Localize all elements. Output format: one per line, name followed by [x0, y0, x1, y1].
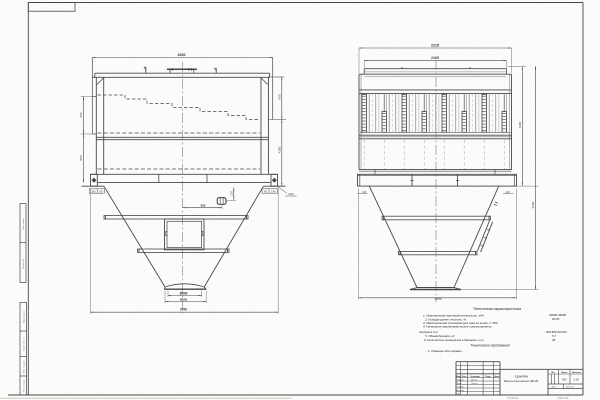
svg-text:Ø430: Ø430 — [180, 298, 188, 302]
svg-text:2215: 2215 — [431, 44, 439, 48]
svg-text:Взам. инв. №: Взам. инв. № — [23, 337, 26, 351]
svg-text:140: 140 — [506, 191, 511, 194]
svg-text:Лит.: Лит. — [551, 372, 555, 374]
svg-text:Инв. № подл.: Инв. № подл. — [23, 379, 26, 392]
svg-text:450: 450 — [562, 377, 567, 381]
svg-text:4. Начальное аэродинамическое: 4. Начальное аэродинамическое сопротивле… — [423, 325, 492, 329]
svg-text:48: 48 — [552, 338, 556, 342]
svg-text:Формат А2: Формат А2 — [557, 396, 569, 399]
svg-text:Утв.: Утв. — [457, 393, 461, 395]
svg-text:Н.контр.: Н.контр. — [457, 390, 465, 392]
svg-text:Циклон: Циклон — [515, 374, 529, 378]
svg-text:5380: 5380 — [531, 201, 535, 208]
svg-text:Инв. № дубл.: Инв. № дубл. — [23, 360, 26, 373]
svg-text:80-85: 80-85 — [552, 317, 560, 321]
svg-text:Технические требования: Технические требования — [470, 344, 509, 348]
svg-text:Листов 1: Листов 1 — [566, 387, 575, 389]
svg-text:830: 830 — [201, 203, 206, 207]
svg-text:140: 140 — [271, 189, 276, 193]
svg-text:6. Количество элементов в бата: 6. Количество элементов в батарее, шт — [424, 338, 484, 342]
svg-text:Вентиляционный ЦВ-49: Вентиляционный ЦВ-49 — [504, 379, 539, 383]
svg-text:Масса: Масса — [561, 372, 568, 374]
svg-text:Зав. архив: Зав. архив — [23, 218, 25, 230]
svg-text:140: 140 — [362, 191, 367, 194]
svg-text:Ø600: Ø600 — [180, 292, 188, 296]
svg-text:2630: 2630 — [178, 53, 186, 57]
svg-text:550: 550 — [79, 155, 83, 160]
svg-text:1:10: 1:10 — [573, 377, 579, 381]
svg-text:Разраб.: Разраб. — [457, 379, 465, 381]
svg-text:Масштаб: Масштаб — [572, 372, 581, 374]
svg-text:Копировал: Копировал — [508, 397, 520, 399]
svg-text:2700: 2700 — [180, 308, 187, 312]
svg-text:А02: А02 — [288, 192, 294, 196]
svg-text:Техническая характеристика: Техническая характеристика — [473, 307, 521, 311]
svg-text:Лист: Лист — [552, 387, 556, 389]
svg-text:4250: 4250 — [277, 146, 281, 153]
svg-text:600: 600 — [277, 94, 281, 99]
svg-text:600-650 (60-65): 600-650 (60-65) — [546, 330, 567, 334]
svg-text:4380: 4380 — [518, 121, 522, 128]
svg-text:Справ. №: Справ. № — [22, 258, 25, 269]
svg-text:600: 600 — [79, 112, 83, 117]
svg-text:Петров: Петров — [471, 383, 478, 385]
svg-text:120: 120 — [229, 191, 233, 196]
svg-text:180: 180 — [91, 189, 96, 193]
svg-text:Иванов: Иванов — [471, 379, 477, 381]
svg-text:1. Размеры для справок.: 1. Размеры для справок. — [428, 349, 463, 353]
svg-text:Пров.: Пров. — [457, 383, 463, 385]
svg-text:2300: 2300 — [435, 297, 442, 301]
svg-text:Подп. и дата: Подп. и дата — [24, 310, 26, 323]
svg-text:Т.контр.: Т.контр. — [457, 386, 465, 388]
svg-text:2100: 2100 — [431, 56, 439, 60]
